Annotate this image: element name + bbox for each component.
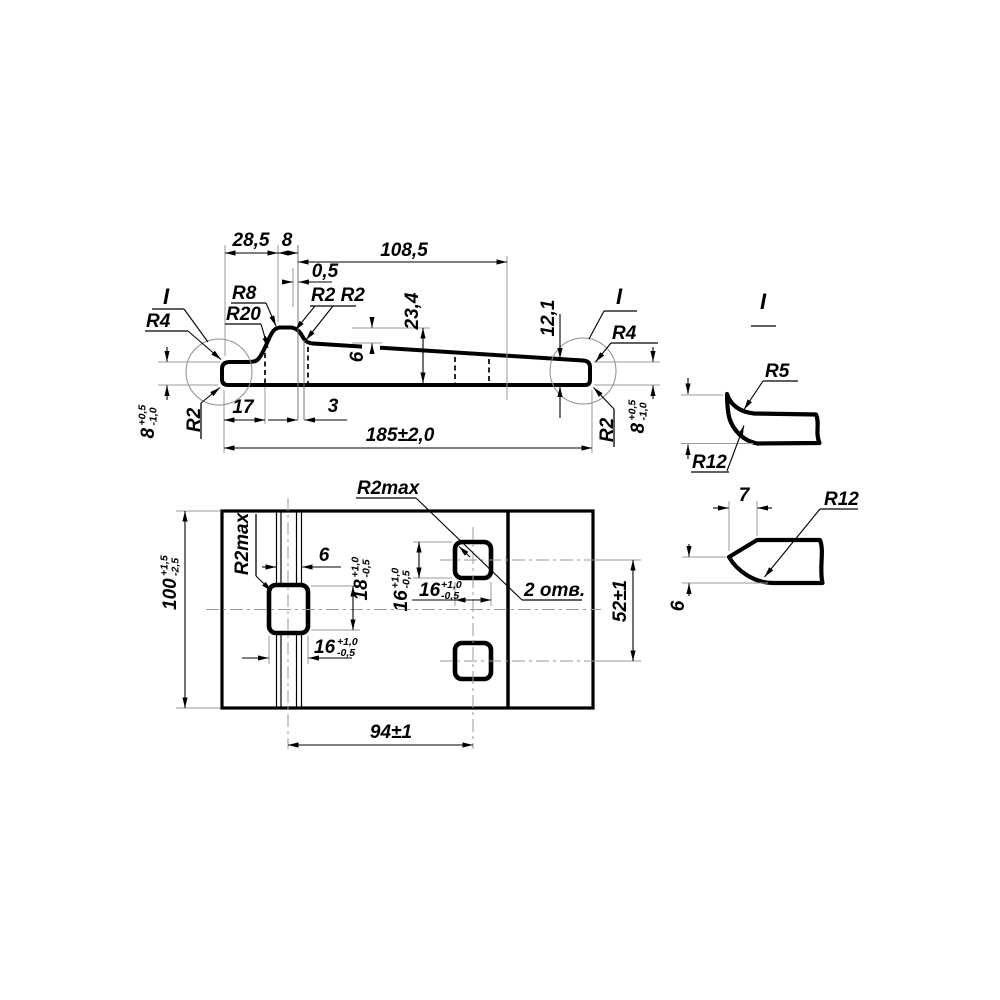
dim-16-left: 16 [314, 637, 336, 658]
radius-r5: R5 [765, 361, 790, 382]
dim-94: 94±1 [370, 722, 412, 743]
dim-6-step: 6 [347, 351, 368, 362]
technical-drawing: 28,5 8 108,5 0,5 17 3 185±2,0 23,4 6 12,… [0, 0, 1000, 1000]
side-view: 28,5 8 108,5 0,5 17 3 185±2,0 23,4 6 12,… [137, 230, 661, 453]
radius-r12-hook: R12 [692, 452, 727, 473]
dim-23-4: 23,4 [402, 292, 423, 330]
radius-r4-left: R4 [146, 311, 171, 332]
dim-0-5: 0,5 [312, 261, 339, 282]
radius-r4-right: R4 [612, 323, 637, 344]
dim-108-5: 108,5 [380, 240, 428, 261]
radius-r2-r2: R2 R2 [311, 285, 365, 306]
dim-3: 3 [328, 396, 339, 417]
dim-18: 18 [351, 579, 372, 601]
detail-i-title: I [760, 289, 767, 314]
dim-6-point: 6 [668, 600, 689, 611]
dim-16-horizontal-lower-tol: -0,5 [441, 590, 459, 602]
dim-8-right-lower-tol: -1,0 [638, 402, 650, 420]
dim-17: 17 [232, 397, 255, 418]
label-r2max-top: R2max [357, 478, 421, 499]
dim-16-vertical-lower-tol: -0,5 [401, 570, 413, 588]
dim-12-1: 12,1 [538, 300, 559, 337]
radius-r20: R20 [226, 304, 261, 325]
dim-16-vertical: 16 [391, 590, 412, 612]
dim-8-left: 8 [138, 428, 159, 439]
label-r2max-left: R2max [232, 511, 253, 575]
dim-6-rib: 6 [319, 545, 330, 566]
slope-line-break [362, 340, 380, 351]
dim-8-right: 8 [628, 423, 649, 434]
dim-185: 185±2,0 [366, 425, 435, 446]
dim-8-left-lower-tol: -1,0 [148, 407, 160, 425]
radius-r12-point: R12 [824, 489, 859, 510]
dim-28-5: 28,5 [232, 230, 270, 251]
radius-r2-left: R2 [184, 407, 205, 432]
pointed-end-section: 7 R12 6 [668, 485, 859, 611]
dim-52: 52±1 [610, 580, 631, 622]
dim-16-left-lower-tol: -0,5 [337, 647, 355, 659]
radius-r2-right: R2 [597, 417, 618, 442]
dim-100-lower-tol: -2,5 [170, 558, 182, 576]
detail-ref-left: I [163, 284, 170, 309]
detail-i-outline [727, 394, 820, 444]
drawing-sheet: 28,5 8 108,5 0,5 17 3 185±2,0 23,4 6 12,… [0, 0, 1000, 1000]
dim-16-horizontal: 16 [419, 580, 441, 601]
plan-view: 100 +1,5 -2,5 R2max R2max 6 18 +1,0 -0,5… [159, 478, 642, 749]
side-view-outline [222, 328, 590, 386]
dim-18-lower-tol: -0,5 [361, 559, 373, 577]
radius-r8: R8 [232, 283, 257, 304]
pointed-end-outline [729, 540, 823, 583]
note-two-holes: 2 отв. [523, 580, 585, 601]
detail-ref-right: I [616, 284, 623, 309]
dim-7: 7 [739, 485, 751, 506]
detail-view-i: I R5 R12 [681, 289, 820, 473]
dim-8-top: 8 [282, 230, 293, 251]
dim-100: 100 [160, 578, 181, 610]
